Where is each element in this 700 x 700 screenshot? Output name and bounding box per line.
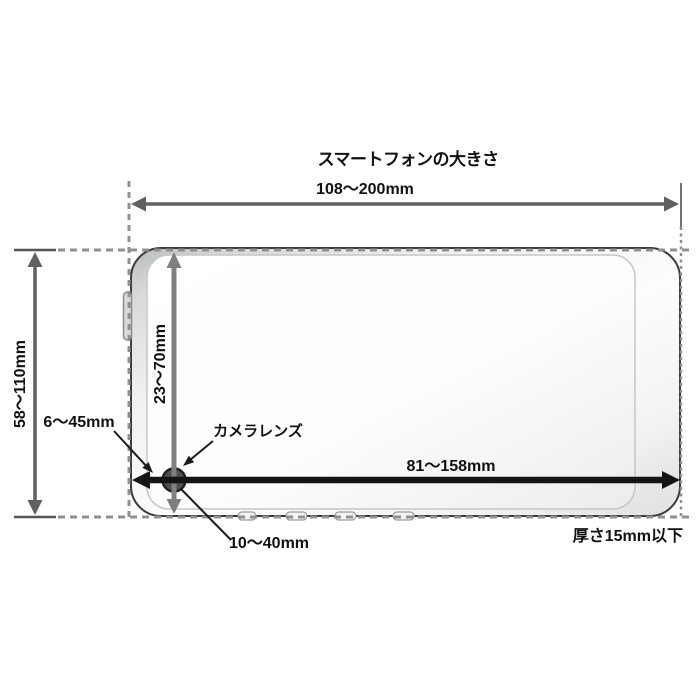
product-dimension-diagram: スマートフォンの大きさ 108〜200mm 58〜110mm 23〜70mm 6… xyxy=(0,0,700,700)
arrowhead-down-icon xyxy=(28,500,43,515)
arrowhead-left-icon xyxy=(131,197,146,212)
lens-bottom-offset-label: 10〜40mm xyxy=(209,535,329,553)
lens-top-offset-label: 23〜70mm xyxy=(152,304,170,424)
height-dimension-label: 58〜110mm xyxy=(12,304,32,464)
thickness-note: 厚さ15mm以下 xyxy=(483,528,683,546)
diagram-title: スマートフォンの大きさ xyxy=(278,151,538,170)
lens-left-offset-label: 6〜45mm xyxy=(19,414,139,432)
camera-lens-label: カメラレンズ xyxy=(198,424,318,441)
lens-right-offset-label: 81〜158mm xyxy=(381,458,521,476)
size-diagram-graphics xyxy=(0,0,700,700)
width-dimension-label: 108〜200mm xyxy=(265,181,465,199)
width-dimension-arrow xyxy=(131,197,679,212)
arrowhead-up-icon xyxy=(28,252,43,267)
arrowhead-right-icon xyxy=(664,197,679,212)
